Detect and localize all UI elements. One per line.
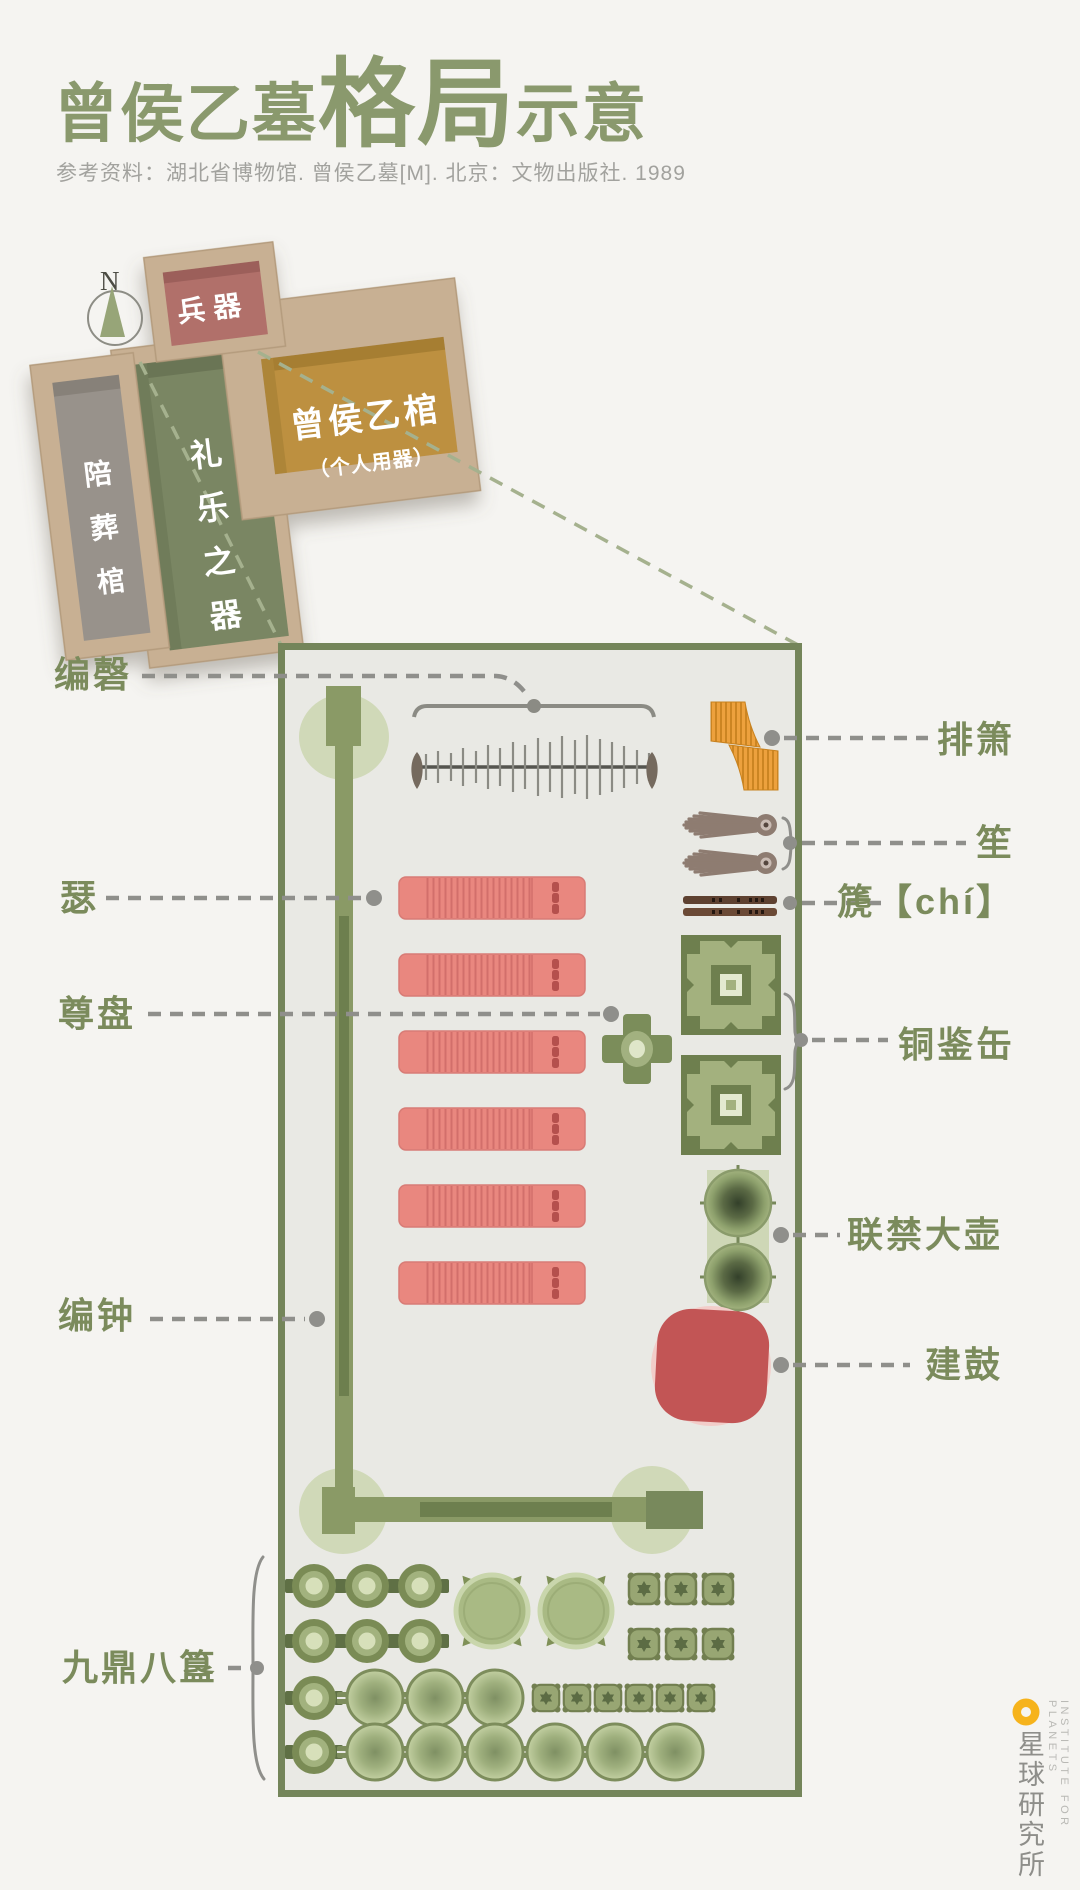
se-zither xyxy=(399,1185,585,1227)
diagram-artwork xyxy=(0,0,1080,1890)
label-bianzhong: 编钟 xyxy=(58,1298,136,1334)
se-zither xyxy=(399,1262,585,1304)
jian-drum xyxy=(651,1306,771,1426)
page-title: 曾侯乙墓格局示意 xyxy=(54,50,648,147)
infographic-poster: 曾侯乙墓格局示意 参考资料：湖北省博物馆. 曾侯乙墓[M]. 北京：文物出版社.… xyxy=(0,0,1080,1890)
label-chi: 篪【chí】 xyxy=(837,884,1015,920)
logo-dot-icon xyxy=(1013,1699,1040,1726)
jian-fou-vessel xyxy=(684,1058,778,1152)
se-zither xyxy=(399,877,585,919)
logo-tagline: INSTITUTE FOR PLANETS xyxy=(1046,1700,1070,1880)
label-se: 瑟 xyxy=(60,880,99,916)
title-emphasis: 格局 xyxy=(318,57,516,154)
label-jiangu: 建鼓 xyxy=(925,1347,1003,1383)
label-tongjianfou: 铜鉴缶 xyxy=(898,1027,1015,1063)
label-jiudingbagui: 九鼎八簋 xyxy=(62,1650,218,1686)
logo-name: 星球研究所 xyxy=(1010,1730,1049,1890)
se-zither xyxy=(399,1031,585,1073)
title-suffix: 示意 xyxy=(516,83,648,147)
jin-stand-hu-pots xyxy=(700,1165,776,1315)
se-zither xyxy=(399,1108,585,1150)
label-lianjindahu: 联禁大壶 xyxy=(847,1217,1003,1253)
label-zunpan: 尊盘 xyxy=(58,996,136,1032)
label-bianqing: 编磬 xyxy=(54,657,132,693)
title-prefix: 曾侯乙墓 xyxy=(54,83,318,147)
label-paixiao: 排箫 xyxy=(937,722,1015,758)
sheng-instrument xyxy=(684,851,777,875)
sheng-instrument xyxy=(684,813,777,837)
jian-fou-vessel xyxy=(684,938,778,1032)
compass-north-label: N xyxy=(100,266,120,297)
se-zither xyxy=(399,954,585,996)
reference-citation: 参考资料：湖北省博物馆. 曾侯乙墓[M]. 北京：文物出版社. 1989 xyxy=(56,157,686,187)
label-sheng: 笙 xyxy=(976,825,1015,861)
